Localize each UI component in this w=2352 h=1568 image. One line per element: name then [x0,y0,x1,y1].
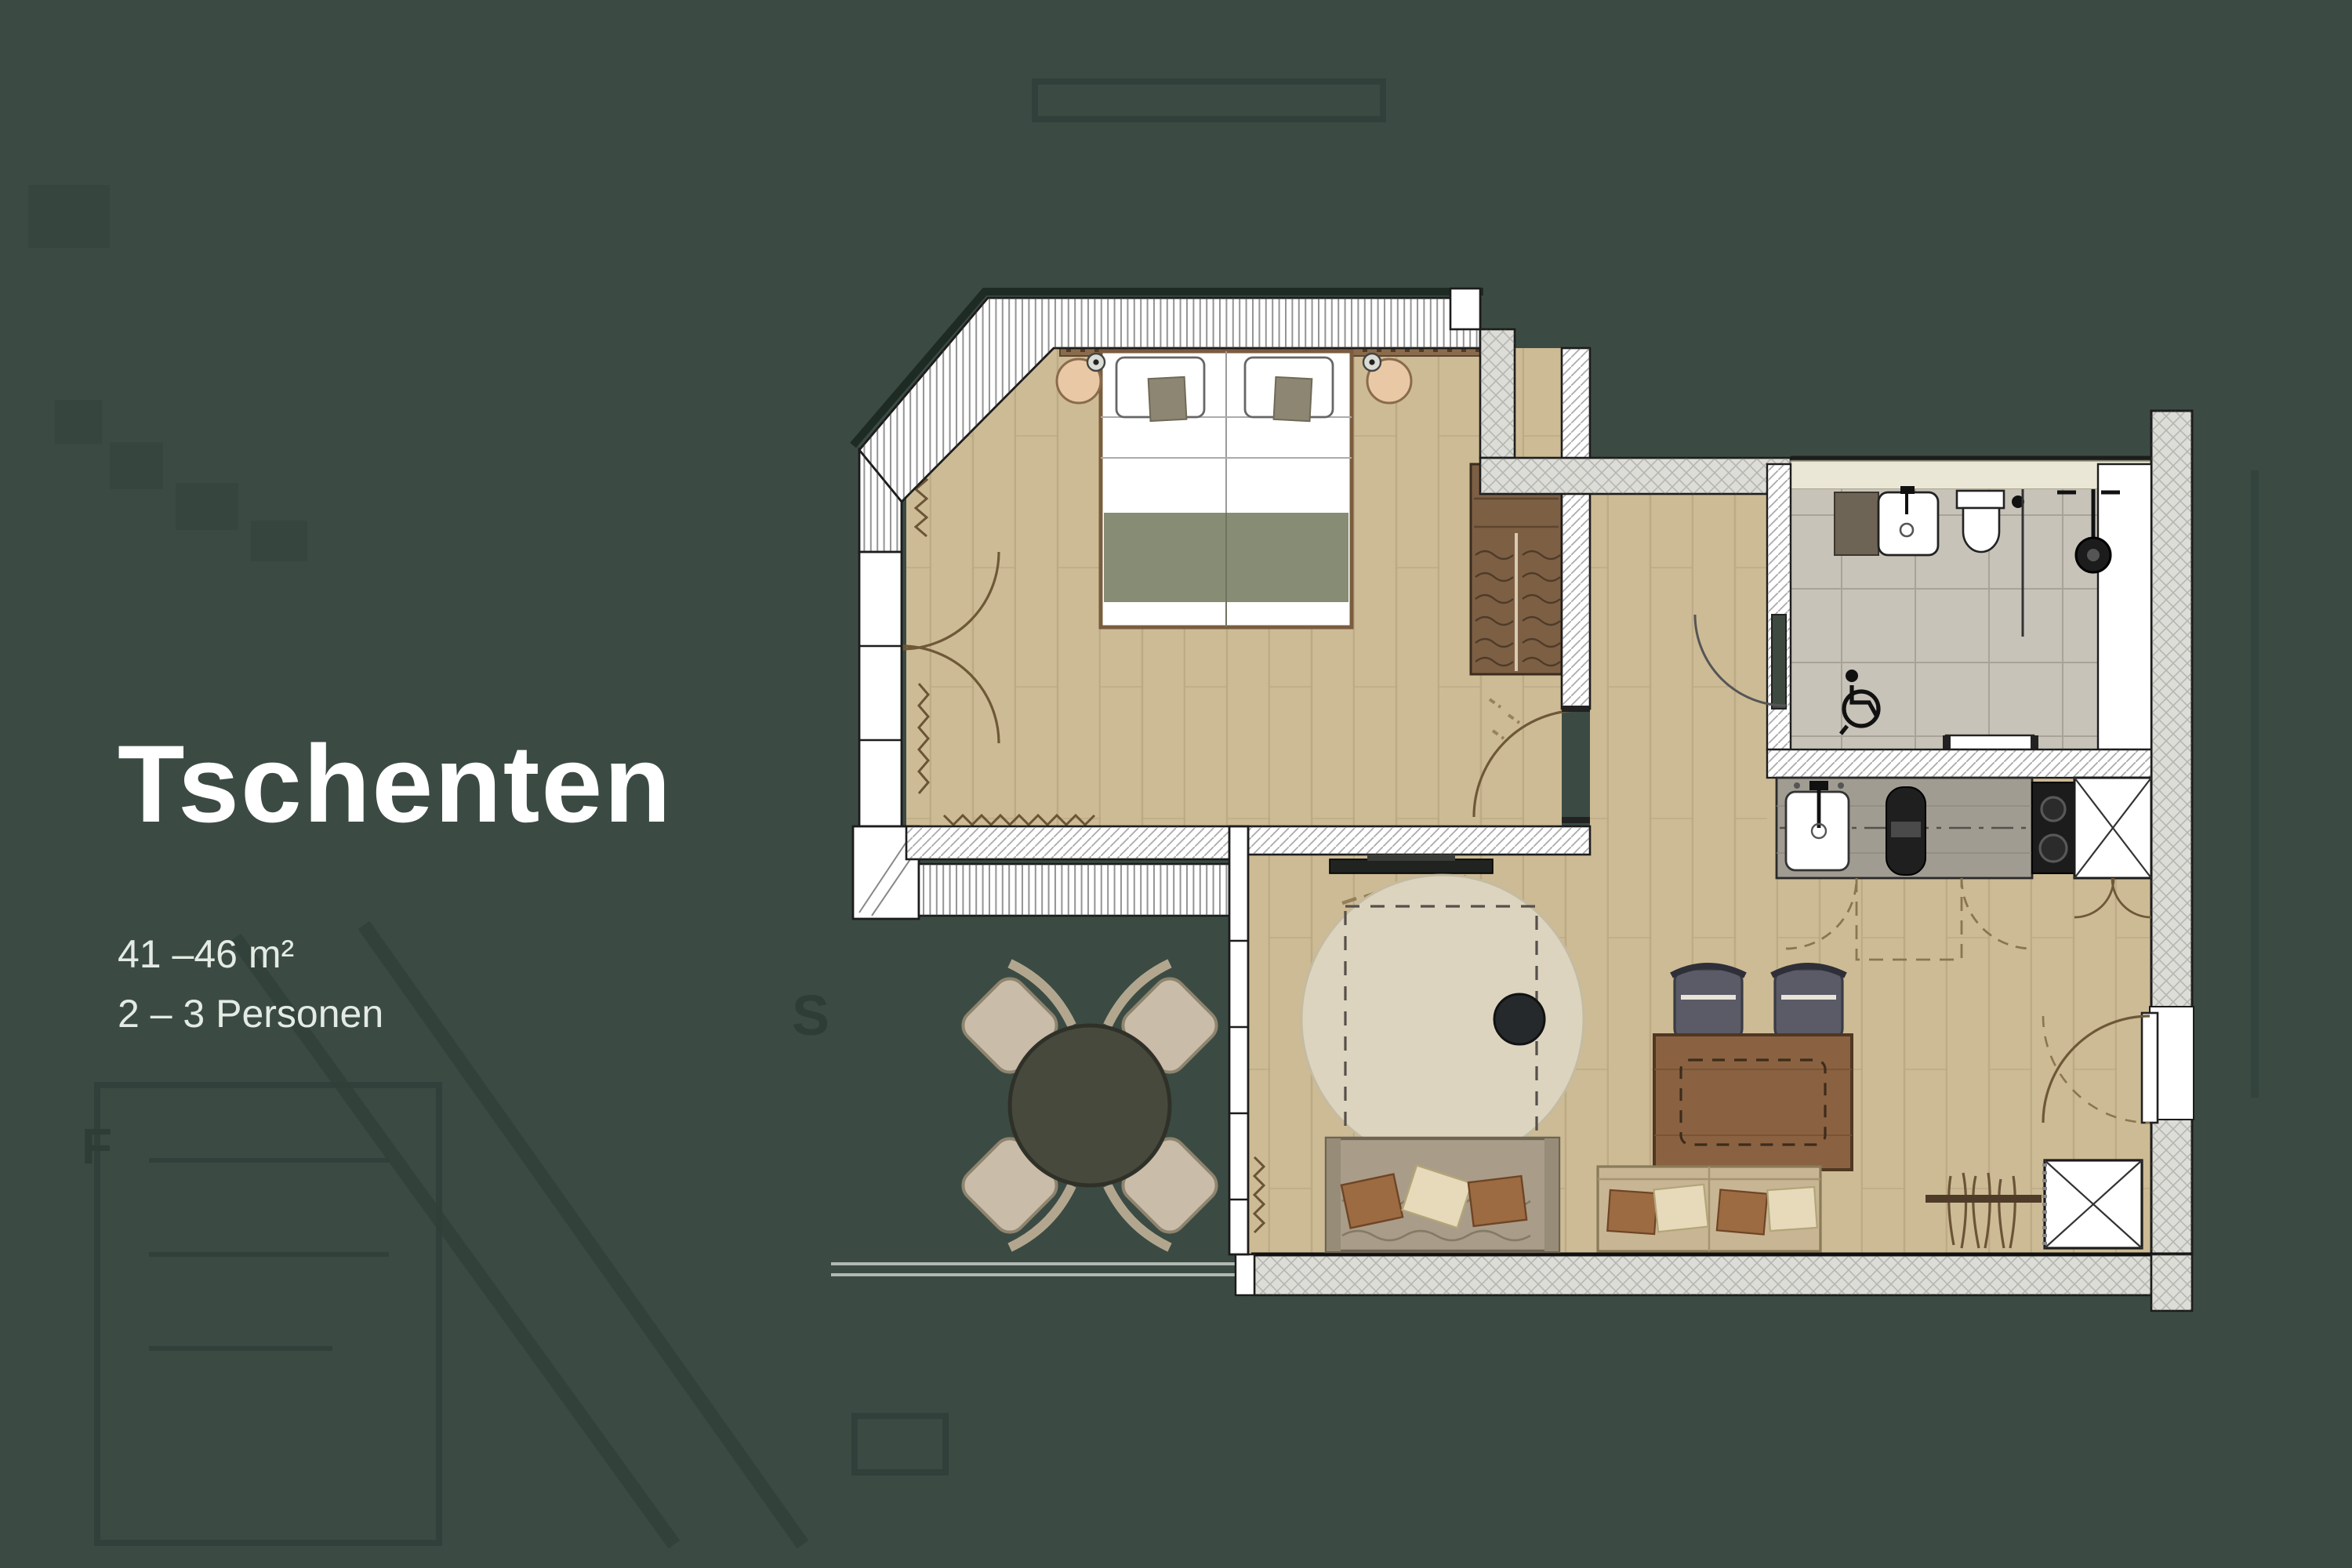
living-terrace-glazing [1229,826,1248,1254]
vanity-sink [1835,486,1938,555]
bathroom-right-wall [2098,464,2151,750]
left-wall-doors [859,552,902,826]
cooktop [2032,782,2074,873]
double-bed [1101,351,1352,627]
bench-pillow-cream [1653,1185,1708,1232]
page-title: Tschenten [118,724,673,844]
coffee-machine [1886,787,1926,875]
dining-table [1654,1035,1852,1170]
capacity-label: 2 – 3 Personen [118,985,673,1044]
entry-door-leaf [2142,1013,2158,1123]
pillow [1245,358,1333,421]
pillow [1116,358,1204,421]
wardrobe [1471,464,1562,674]
sofa-pillow-rust [1468,1176,1526,1226]
entry-closet [2045,1160,2142,1248]
dining-chair [1671,966,1745,1041]
bathroom-niche [1943,735,2038,750]
title-block: Tschenten 41 –46 m² 2 – 3 Personen [118,724,673,1044]
sofa [1327,1138,1559,1251]
bottom-wall-cap [1236,1254,1254,1295]
top-corner-white [1450,289,1480,329]
side-table [1494,994,1544,1044]
site-ghost-letter-s: S [792,985,829,1047]
terrace-table [1010,1025,1170,1185]
tall-cabinet [2074,778,2151,878]
site-ghost-letter-f: F [82,1118,112,1174]
tv [1330,859,1493,873]
bench-pillow-cream [1767,1187,1817,1231]
bathroom-door-leaf [1772,615,1786,709]
floorplan-slide: S F [0,0,2352,1568]
dining-chair [1772,966,1846,1041]
bench-pillow-rust [1717,1189,1767,1234]
area-label: 41 –46 m² [118,925,673,985]
dining-bench [1598,1167,1820,1251]
bench-pillow-rust [1607,1190,1657,1234]
slide: S F [0,0,2352,1568]
kitchen-sink [1786,781,1849,870]
